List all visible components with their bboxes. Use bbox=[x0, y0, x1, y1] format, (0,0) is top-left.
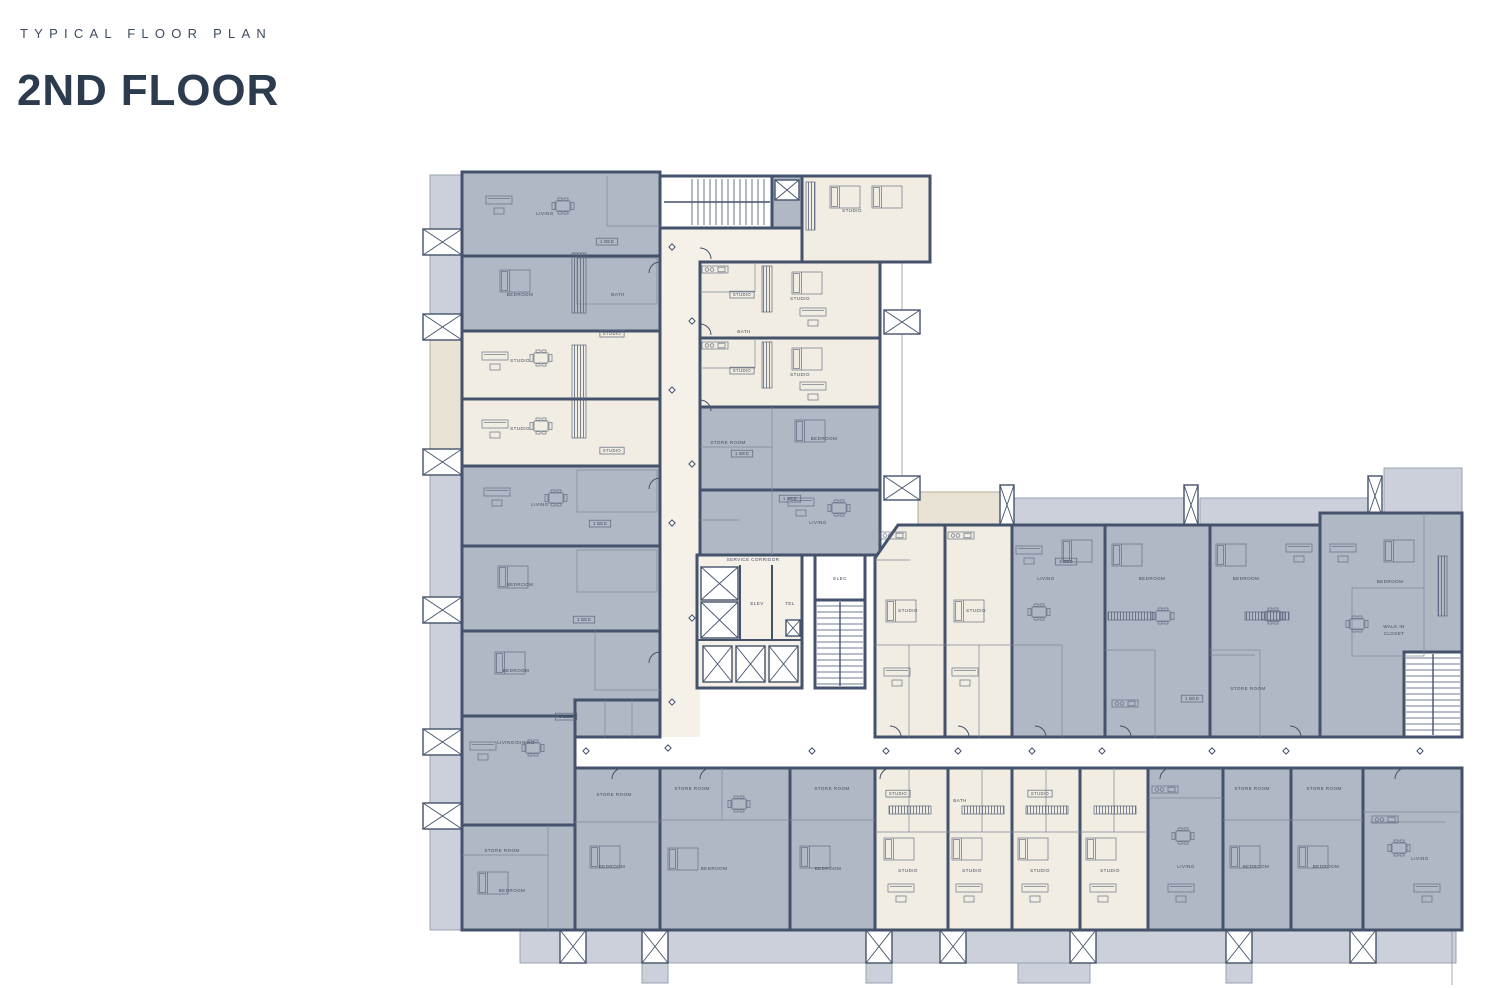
balcony-rightwing-1 bbox=[918, 492, 1000, 525]
room-label: BATH bbox=[737, 329, 751, 334]
room-label: STORE ROOM bbox=[814, 786, 849, 791]
room-label: BEDROOM bbox=[1377, 579, 1404, 584]
room-label: BEDROOM bbox=[811, 436, 838, 441]
unit-1bed-s8 bbox=[1148, 768, 1223, 930]
svg-text:1 BED: 1 BED bbox=[735, 451, 749, 456]
svg-text:1 BED: 1 BED bbox=[783, 496, 797, 501]
unit-studio-northeast bbox=[802, 176, 930, 262]
balcony-rightwing-2 bbox=[1014, 498, 1184, 525]
room-label: STORE ROOM bbox=[1234, 786, 1269, 791]
svg-text:1 BED: 1 BED bbox=[1185, 696, 1199, 701]
elevator-car bbox=[703, 646, 732, 682]
unit-1bed-r3 bbox=[1012, 525, 1105, 737]
svg-text:STUDIO: STUDIO bbox=[889, 791, 908, 796]
room-label: ELEV bbox=[750, 601, 764, 606]
room-label: STUDIO bbox=[1030, 868, 1050, 873]
room-label: SERVICE CORRIDOR bbox=[727, 557, 780, 562]
units-bottom-band bbox=[575, 768, 1462, 930]
room-label: BEDROOM bbox=[1243, 864, 1270, 869]
room-label: BEDROOM bbox=[701, 866, 728, 871]
svg-text:STUDIO: STUDIO bbox=[603, 331, 622, 336]
room-label: STUDIO bbox=[898, 868, 918, 873]
unit-1bed-s9 bbox=[1223, 768, 1291, 930]
room-label: LIVING bbox=[1177, 864, 1194, 869]
room-label: STORE ROOM bbox=[596, 792, 631, 797]
room-label: STUDIO bbox=[962, 868, 982, 873]
unit-studio-b bbox=[462, 399, 660, 466]
unit-corner-southwest bbox=[462, 825, 575, 930]
unit-type-tag: STUDIO bbox=[730, 291, 754, 298]
elevator-car bbox=[769, 646, 798, 682]
bath-block bbox=[575, 700, 660, 737]
unit-1bed-s3 bbox=[790, 768, 875, 930]
room-label: STORE ROOM bbox=[1230, 686, 1265, 691]
unit-corner-southeast bbox=[1363, 768, 1462, 930]
balcony-left-cream bbox=[430, 331, 462, 466]
room-label: BEDROOM bbox=[599, 864, 626, 869]
room-label: BEDROOM bbox=[1233, 576, 1260, 581]
room-label: BEDROOM bbox=[507, 582, 534, 587]
unit-1bed-r5 bbox=[1210, 525, 1320, 737]
elevator-car bbox=[736, 646, 765, 682]
unit-type-tag: STUDIO bbox=[730, 367, 754, 374]
room-label: STORE ROOM bbox=[674, 786, 709, 791]
room-label: BEDROOM bbox=[503, 668, 530, 673]
unit-type-tag: STUDIO bbox=[886, 790, 910, 797]
balcony-rightwing-4 bbox=[1384, 468, 1462, 515]
room-label: STUDIO bbox=[966, 608, 986, 613]
page: TYPICAL FLOOR PLAN 2ND FLOOR bbox=[0, 0, 1502, 988]
svg-text:1 BED: 1 BED bbox=[559, 714, 573, 719]
unit-studio-r2 bbox=[945, 525, 1012, 737]
room-label: BEDROOM bbox=[1313, 864, 1340, 869]
unit-type-tag: STUDIO bbox=[1028, 790, 1052, 797]
unit-1bed-d bbox=[462, 546, 660, 631]
unit-1bed-f bbox=[462, 716, 575, 825]
room-label: STORE ROOM bbox=[710, 440, 745, 445]
room-label: LIVING bbox=[809, 520, 826, 525]
room-label: TEL bbox=[785, 601, 795, 606]
room-label: STUDIO bbox=[510, 358, 530, 363]
room-label: STUDIO bbox=[1100, 868, 1120, 873]
room-label: LIVING bbox=[1411, 856, 1428, 861]
closet bbox=[572, 253, 586, 313]
unit-1bed-s10 bbox=[1291, 768, 1363, 930]
room-label: STUDIO bbox=[790, 372, 810, 377]
room-label: LIVING/DINING bbox=[497, 740, 535, 745]
room-label: BEDROOM bbox=[507, 292, 534, 297]
room-label: ELEC bbox=[833, 576, 847, 581]
room-label: STUDIO bbox=[898, 608, 918, 613]
room-label: STUDIO bbox=[510, 426, 530, 431]
units-right-wing bbox=[875, 513, 1462, 737]
floor-plan-drawing: LIVINGBEDROOMSTUDIOSTUDIOLIVINGBEDROOMBE… bbox=[0, 0, 1502, 988]
room-label: LIVING bbox=[1037, 576, 1054, 581]
unit-1bed-m3 bbox=[700, 407, 880, 490]
room-label: STUDIO bbox=[790, 296, 810, 301]
room-label: BATH bbox=[953, 798, 967, 803]
room-label: BEDROOM bbox=[499, 888, 526, 893]
svg-text:STUDIO: STUDIO bbox=[733, 292, 752, 297]
svg-text:1 BED: 1 BED bbox=[577, 617, 591, 622]
room-label: STORE ROOM bbox=[1306, 786, 1341, 791]
unit-1bed-s2 bbox=[660, 768, 790, 930]
room-label: BEDROOM bbox=[1139, 576, 1166, 581]
unit-studio-a bbox=[462, 331, 660, 399]
svg-text:STUDIO: STUDIO bbox=[733, 368, 752, 373]
unit-type-tag: STUDIO bbox=[600, 330, 624, 337]
room-label: LIVING bbox=[536, 211, 553, 216]
room-label: WALK IN bbox=[1383, 624, 1405, 629]
svg-text:STUDIO: STUDIO bbox=[1031, 791, 1050, 796]
svg-text:STUDIO: STUDIO bbox=[603, 448, 622, 453]
unit-studio-s5 bbox=[948, 768, 1012, 930]
room-label: STORE ROOM bbox=[484, 848, 519, 853]
unit-studio-r1 bbox=[875, 525, 945, 737]
room-label: LIVING bbox=[531, 502, 548, 507]
room-label: STUDIO bbox=[842, 208, 862, 213]
room-label: BEDROOM bbox=[815, 866, 842, 871]
unit-1bed-bedroom bbox=[462, 256, 660, 331]
corridor-landing bbox=[700, 228, 802, 262]
facade-brace bbox=[423, 229, 462, 255]
svg-text:1 BED: 1 BED bbox=[593, 521, 607, 526]
unit-type-tag: STUDIO bbox=[600, 447, 624, 454]
room-label: CLOSET bbox=[1384, 631, 1405, 636]
room-label: BATH bbox=[611, 292, 625, 297]
corridor-vertical bbox=[660, 228, 700, 737]
svg-text:1 BED: 1 BED bbox=[600, 239, 614, 244]
svg-text:1 BED: 1 BED bbox=[1059, 559, 1073, 564]
